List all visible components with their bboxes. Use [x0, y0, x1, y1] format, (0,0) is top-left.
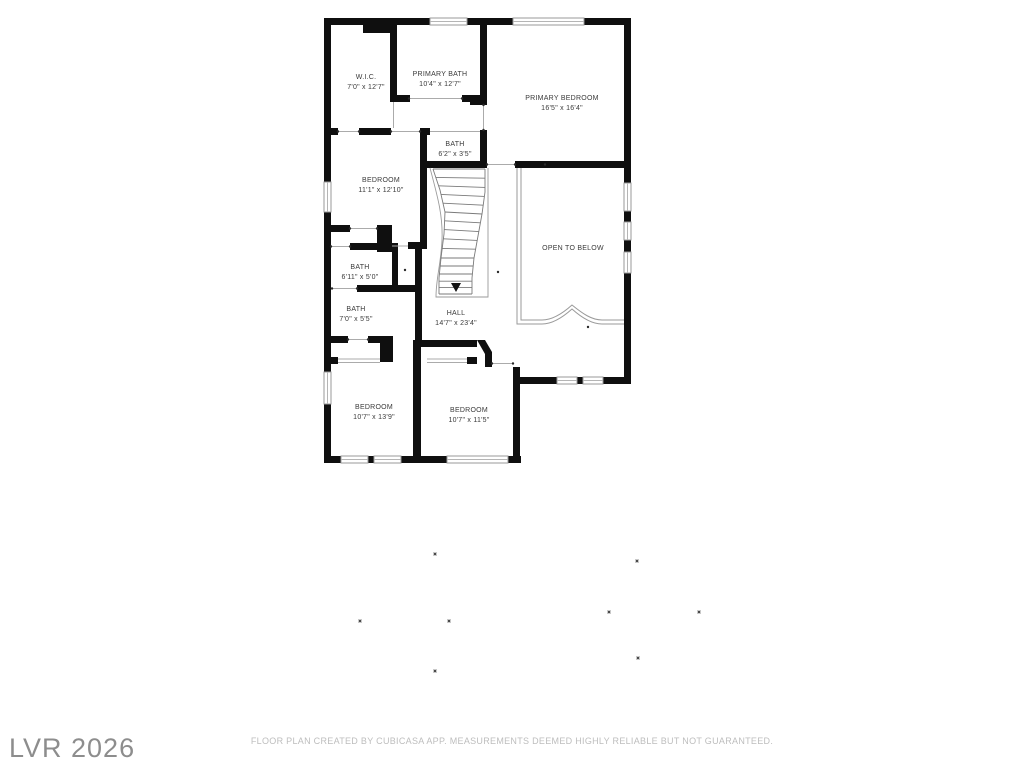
- artifact-dot: [637, 657, 639, 659]
- floor-plan-svg: [0, 0, 1024, 768]
- room-dimensions: 11'1" x 12'10": [358, 186, 403, 196]
- room-dimensions: 14'7" x 23'4": [435, 319, 477, 329]
- room-dimensions: 6'2" x 3'5": [438, 150, 471, 160]
- stair-treads: [433, 169, 485, 294]
- room-name: BEDROOM: [358, 176, 403, 186]
- floor-plan-page: LVR 2026 FLOOR PLAN CREATED BY CUBICASA …: [0, 0, 1024, 768]
- room-dimensions: 10'7" x 11'5": [448, 416, 489, 426]
- room-label: BEDROOM10'7" x 13'9": [353, 403, 395, 423]
- artifact-dot: [608, 611, 610, 613]
- room-dimensions: 16'5" x 16'4": [525, 104, 599, 114]
- room-label: BATH7'0" x 5'5": [339, 305, 372, 325]
- room-name: BATH: [438, 140, 471, 150]
- room-dimensions: 10'4" x 12'7": [413, 80, 468, 90]
- artifact-dot: [434, 553, 436, 555]
- room-label: BATH6'2" x 3'5": [438, 140, 471, 160]
- room-dimensions: 7'0" x 12'7": [347, 83, 385, 93]
- room-name: BATH: [342, 263, 379, 273]
- artifact-dot: [698, 611, 700, 613]
- room-name: OPEN TO BELOW: [542, 244, 604, 254]
- room-label: OPEN TO BELOW: [542, 244, 604, 254]
- room-label: BEDROOM10'7" x 11'5": [448, 406, 489, 426]
- room-label: W.I.C.7'0" x 12'7": [347, 73, 385, 93]
- room-label: HALL14'7" x 23'4": [435, 309, 477, 329]
- room-dimensions: 6'11" x 5'0": [342, 273, 379, 283]
- room-name: PRIMARY BATH: [413, 70, 468, 80]
- room-name: W.I.C.: [347, 73, 385, 83]
- staircase: [430, 168, 488, 297]
- room-label: PRIMARY BATH10'4" x 12'7": [413, 70, 468, 90]
- room-dimensions: 10'7" x 13'9": [353, 413, 395, 423]
- room-label: PRIMARY BEDROOM16'5" x 16'4": [525, 94, 599, 114]
- room-dimensions: 7'0" x 5'5": [339, 315, 372, 325]
- disclaimer-text: FLOOR PLAN CREATED BY CUBICASA APP. MEAS…: [0, 736, 1024, 746]
- artifact-dot: [359, 620, 361, 622]
- room-name: BEDROOM: [353, 403, 395, 413]
- artifact-dot: [434, 670, 436, 672]
- room-name: HALL: [435, 309, 477, 319]
- room-name: PRIMARY BEDROOM: [525, 94, 599, 104]
- artifact-dot: [636, 560, 638, 562]
- room-name: BATH: [339, 305, 372, 315]
- artifact-dot: [448, 620, 450, 622]
- room-label: BATH6'11" x 5'0": [342, 263, 379, 283]
- room-label: BEDROOM11'1" x 12'10": [358, 176, 403, 196]
- room-name: BEDROOM: [448, 406, 489, 416]
